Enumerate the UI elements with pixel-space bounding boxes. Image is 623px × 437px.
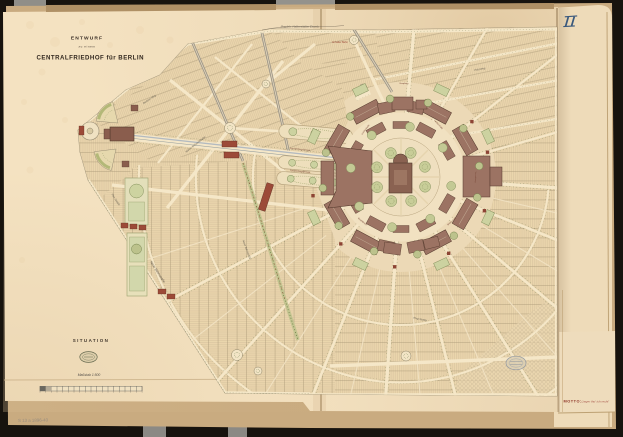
svg-text:Magdeb.-Halberstädter Eisenb.: Magdeb.-Halberstädter Eisenb. <box>281 25 320 29</box>
svg-text:MOTTO:: MOTTO: <box>564 398 582 403</box>
svg-text:ENTWURF: ENTWURF <box>71 36 103 42</box>
svg-text:SITUATION: SITUATION <box>73 338 110 343</box>
svg-text:CENTRALFRIEDHOF für BERLIN: CENTRALFRIEDHOF für BERLIN <box>37 54 144 61</box>
svg-text:Maßstab 1:500: Maßstab 1:500 <box>78 373 101 377</box>
svg-text:Empfang: Empfang <box>400 83 410 85</box>
svg-text:S 13 a 1896-40: S 13 a 1896-40 <box>18 417 49 423</box>
svg-text:zu einem: zu einem <box>79 45 96 49</box>
svg-text:Anhalter Bahn: Anhalter Bahn <box>332 41 348 44</box>
svg-text:Lieger tho’ ich recht’: Lieger tho’ ich recht’ <box>582 399 610 403</box>
svg-text:Verwaltung: Verwaltung <box>474 172 477 184</box>
